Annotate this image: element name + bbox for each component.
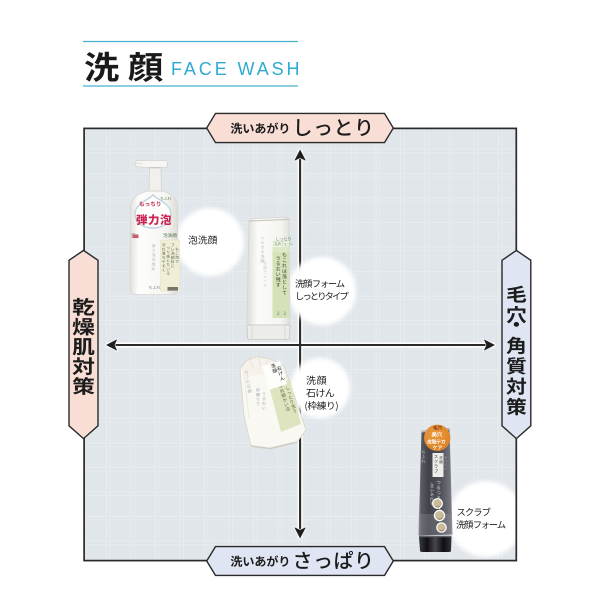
svg-text:FACE WASH: FACE WASH <box>171 59 302 79</box>
